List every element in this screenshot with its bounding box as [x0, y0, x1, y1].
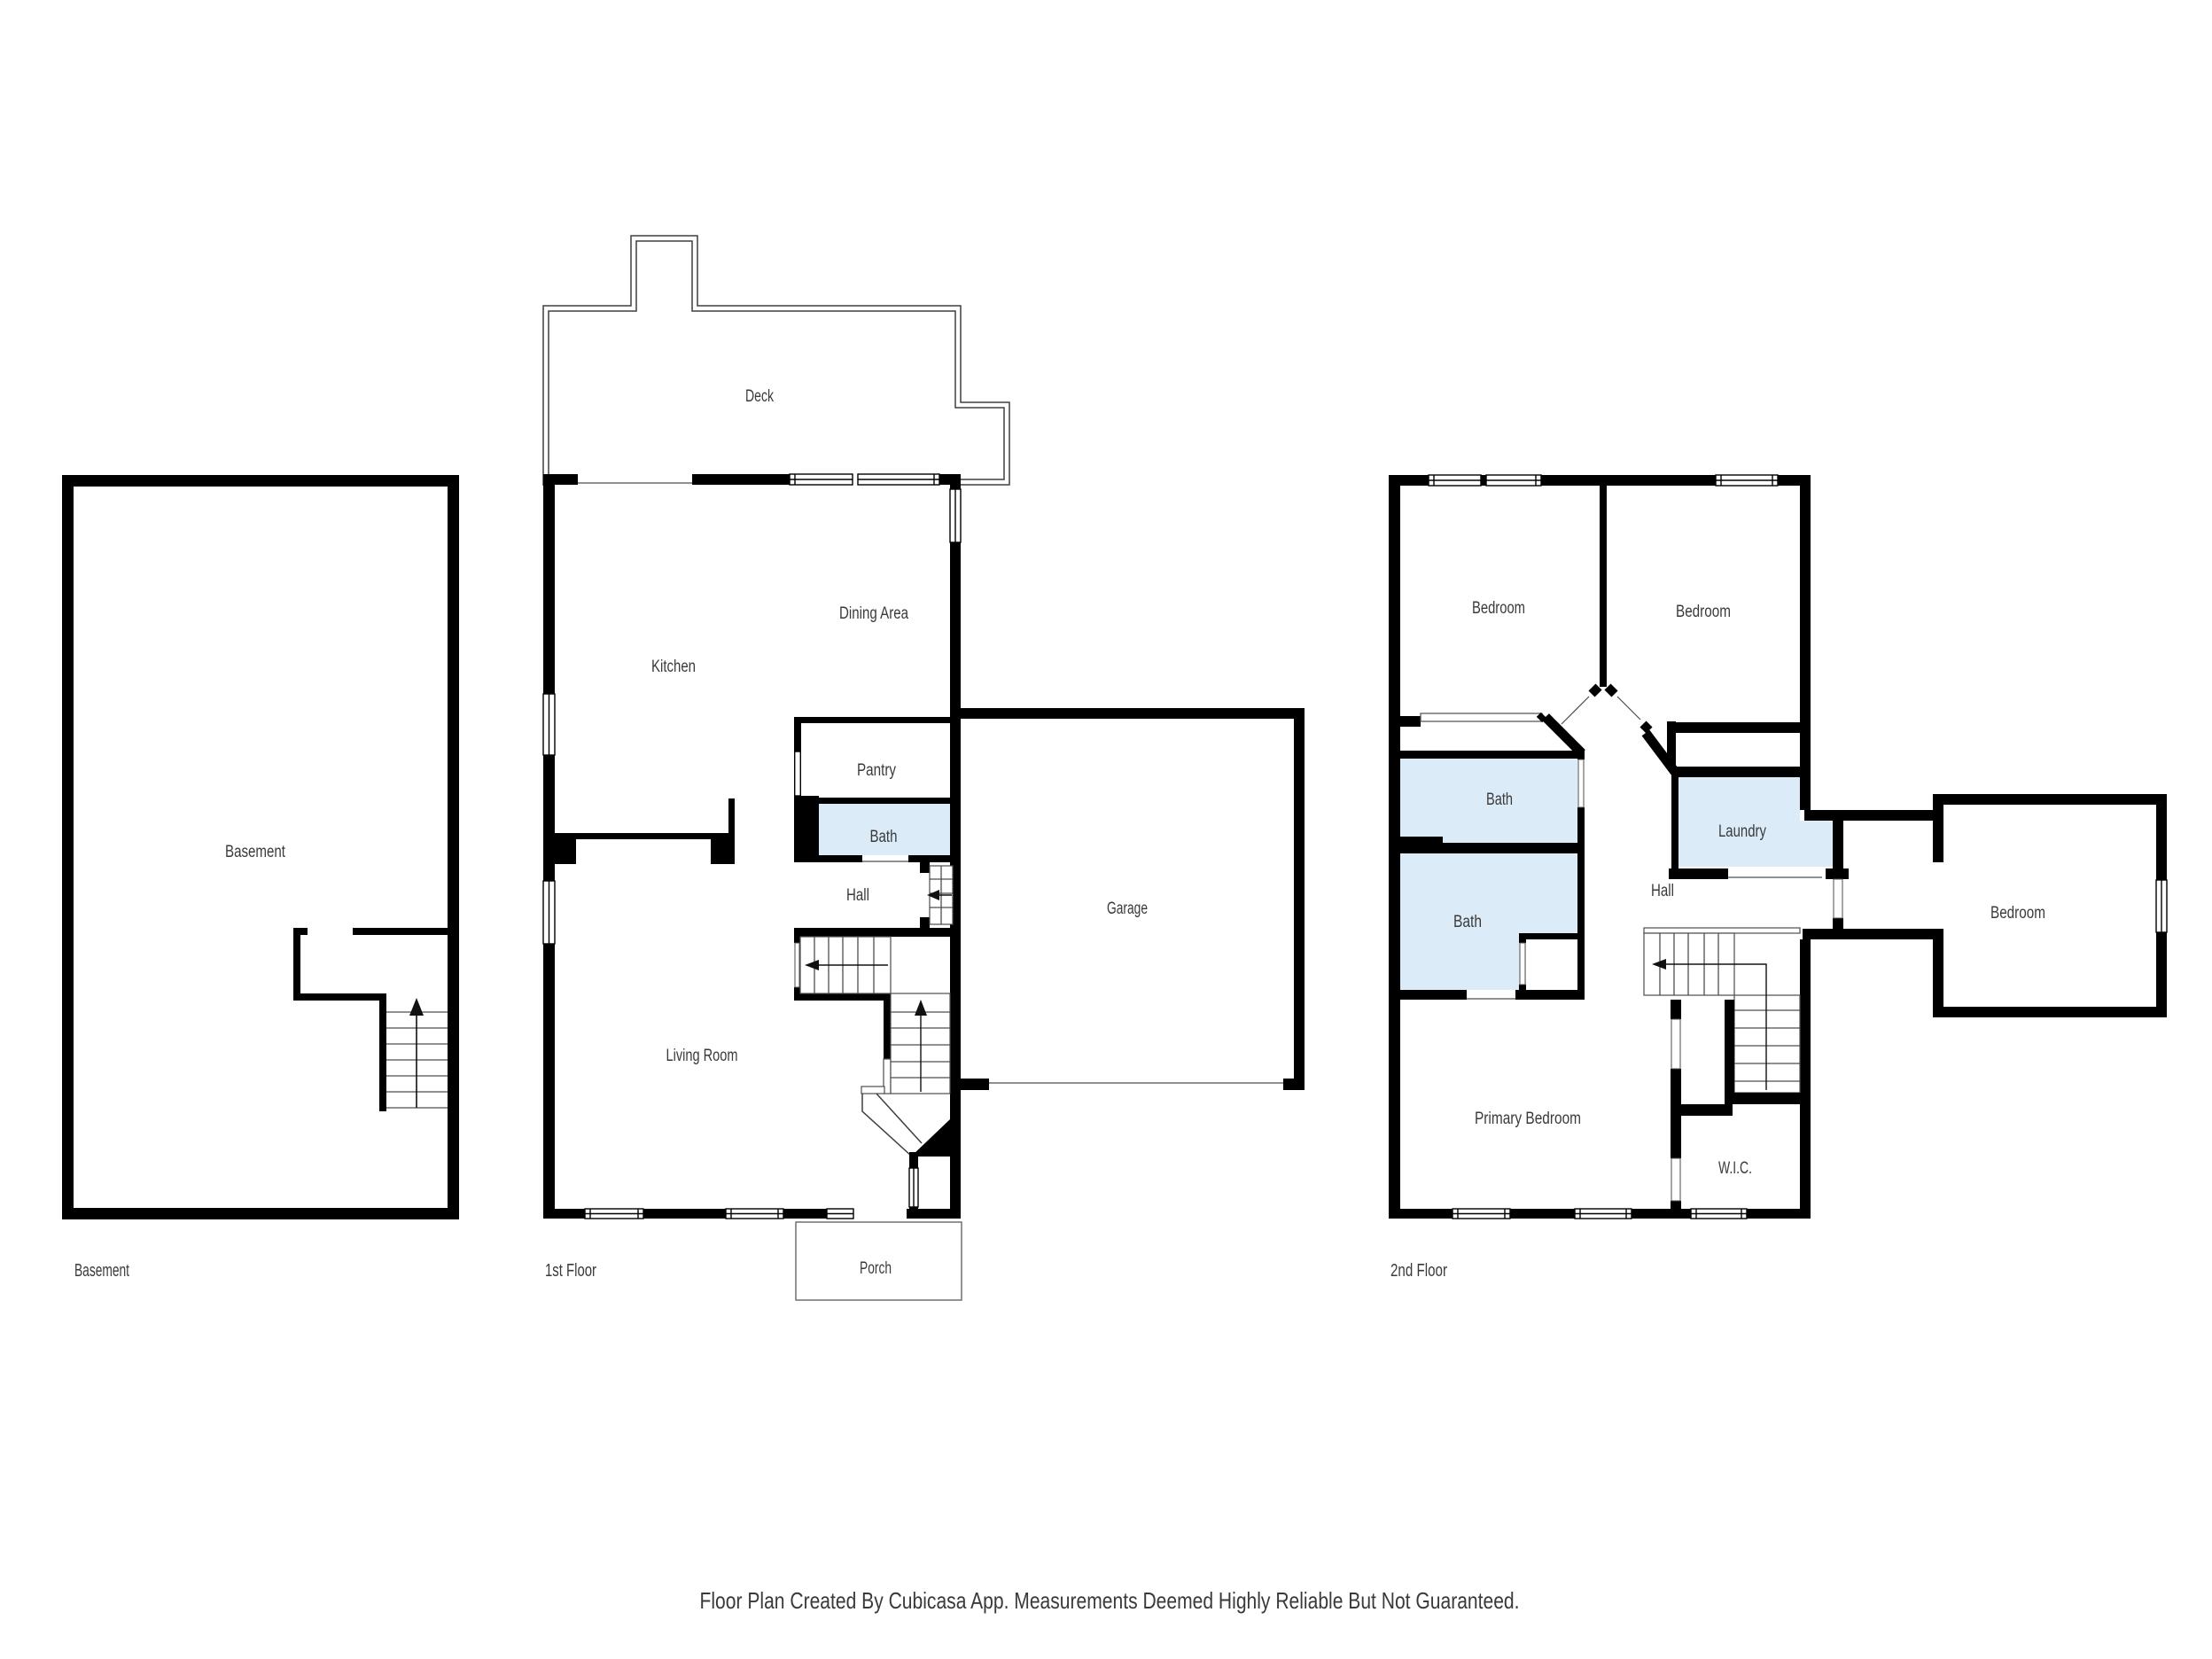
svg-text:1st Floor: 1st Floor	[545, 1261, 596, 1281]
svg-text:Garage: Garage	[1107, 900, 1148, 918]
svg-text:Laundry: Laundry	[1718, 822, 1766, 841]
svg-text:Basement: Basement	[74, 1261, 129, 1281]
svg-text:2nd Floor: 2nd Floor	[1390, 1261, 1447, 1281]
svg-text:Deck: Deck	[745, 387, 774, 406]
svg-text:W.I.C.: W.I.C.	[1718, 1159, 1752, 1178]
svg-text:Pantry: Pantry	[857, 761, 896, 780]
svg-text:Hall: Hall	[1651, 882, 1674, 900]
svg-text:Bedroom: Bedroom	[1676, 603, 1731, 621]
svg-text:Bath: Bath	[870, 828, 898, 846]
svg-text:Bedroom: Bedroom	[1990, 904, 2045, 923]
svg-text:Hall: Hall	[846, 886, 869, 905]
svg-text:Basement: Basement	[225, 843, 286, 861]
svg-text:Living Room: Living Room	[666, 1047, 738, 1065]
svg-text:Bath: Bath	[1486, 791, 1513, 809]
svg-text:Primary Bedroom: Primary Bedroom	[1475, 1110, 1581, 1128]
svg-text:Bath: Bath	[1453, 913, 1482, 931]
svg-text:Porch: Porch	[860, 1259, 892, 1278]
svg-text:Floor Plan Created By Cubicasa: Floor Plan Created By Cubicasa App. Meas…	[700, 1587, 1520, 1614]
svg-text:Dining Area: Dining Area	[839, 604, 908, 623]
svg-text:Kitchen: Kitchen	[651, 658, 696, 676]
svg-text:Bedroom: Bedroom	[1472, 599, 1525, 618]
